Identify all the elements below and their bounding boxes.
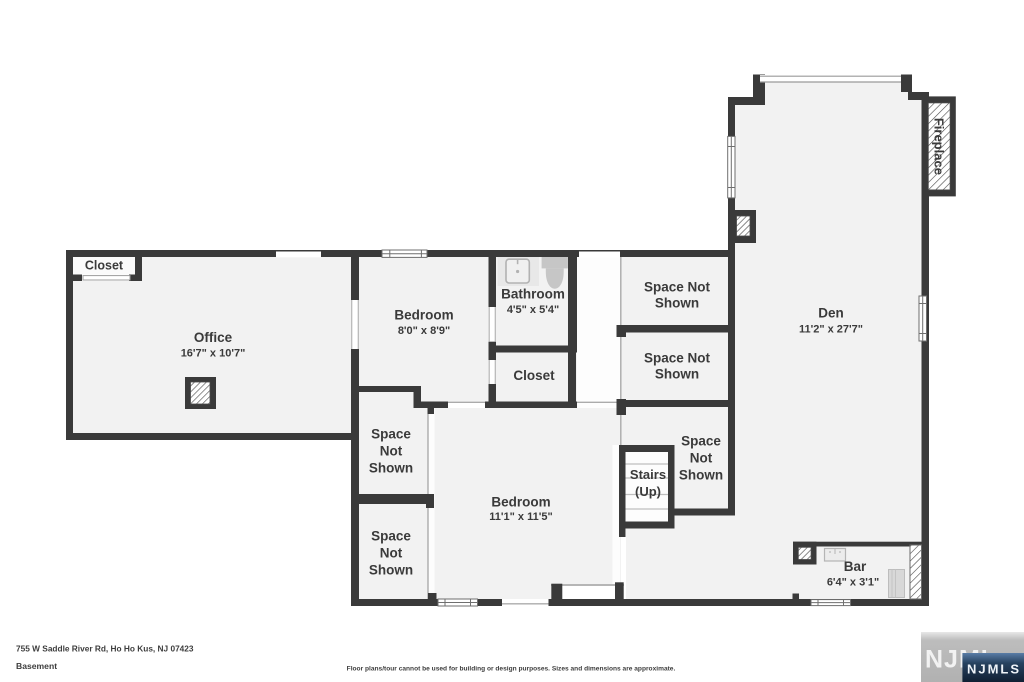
svg-text:Stairs: Stairs: [630, 467, 666, 482]
svg-text:16'7" x 10'7": 16'7" x 10'7": [181, 348, 246, 360]
svg-text:Closet: Closet: [513, 368, 555, 383]
svg-text:Space: Space: [371, 427, 411, 442]
svg-text:Bedroom: Bedroom: [491, 495, 550, 510]
svg-text:Shown: Shown: [655, 296, 699, 311]
svg-text:8'0" x 8'9": 8'0" x 8'9": [398, 325, 450, 337]
svg-text:Shown: Shown: [369, 563, 413, 578]
svg-text:Space Not: Space Not: [644, 351, 711, 366]
svg-text:Bedroom: Bedroom: [394, 308, 453, 323]
svg-text:Den: Den: [818, 306, 844, 321]
svg-text:(Up): (Up): [635, 484, 661, 499]
svg-text:Shown: Shown: [679, 468, 723, 483]
svg-text:11'1" x 11'5": 11'1" x 11'5": [489, 511, 552, 523]
svg-text:Not: Not: [690, 451, 713, 466]
svg-text:Floor plans/tour cannot be use: Floor plans/tour cannot be used for buil…: [347, 666, 676, 673]
svg-text:4'5" x 5'4": 4'5" x 5'4": [507, 304, 559, 316]
svg-text:Closet: Closet: [85, 259, 124, 273]
svg-text:Fireplace: Fireplace: [932, 118, 947, 175]
svg-text:Shown: Shown: [369, 461, 413, 476]
svg-text:11'2" x 27'7": 11'2" x 27'7": [799, 324, 863, 336]
svg-text:Space: Space: [681, 434, 721, 449]
svg-text:Space Not: Space Not: [644, 280, 711, 295]
svg-text:755 W Saddle River Rd, Ho Ho K: 755 W Saddle River Rd, Ho Ho Kus, NJ 074…: [16, 644, 194, 654]
svg-text:Space: Space: [371, 529, 411, 544]
svg-text:Basement: Basement: [16, 661, 57, 671]
svg-text:Not: Not: [380, 444, 403, 459]
svg-text:NJMLS: NJMLS: [967, 662, 1021, 677]
svg-text:Bathroom: Bathroom: [501, 287, 565, 302]
svg-text:Shown: Shown: [655, 367, 699, 382]
svg-text:6'4" x 3'1": 6'4" x 3'1": [827, 577, 879, 589]
svg-text:Not: Not: [380, 546, 403, 561]
svg-text:Bar: Bar: [844, 559, 867, 574]
svg-text:Office: Office: [194, 330, 233, 345]
